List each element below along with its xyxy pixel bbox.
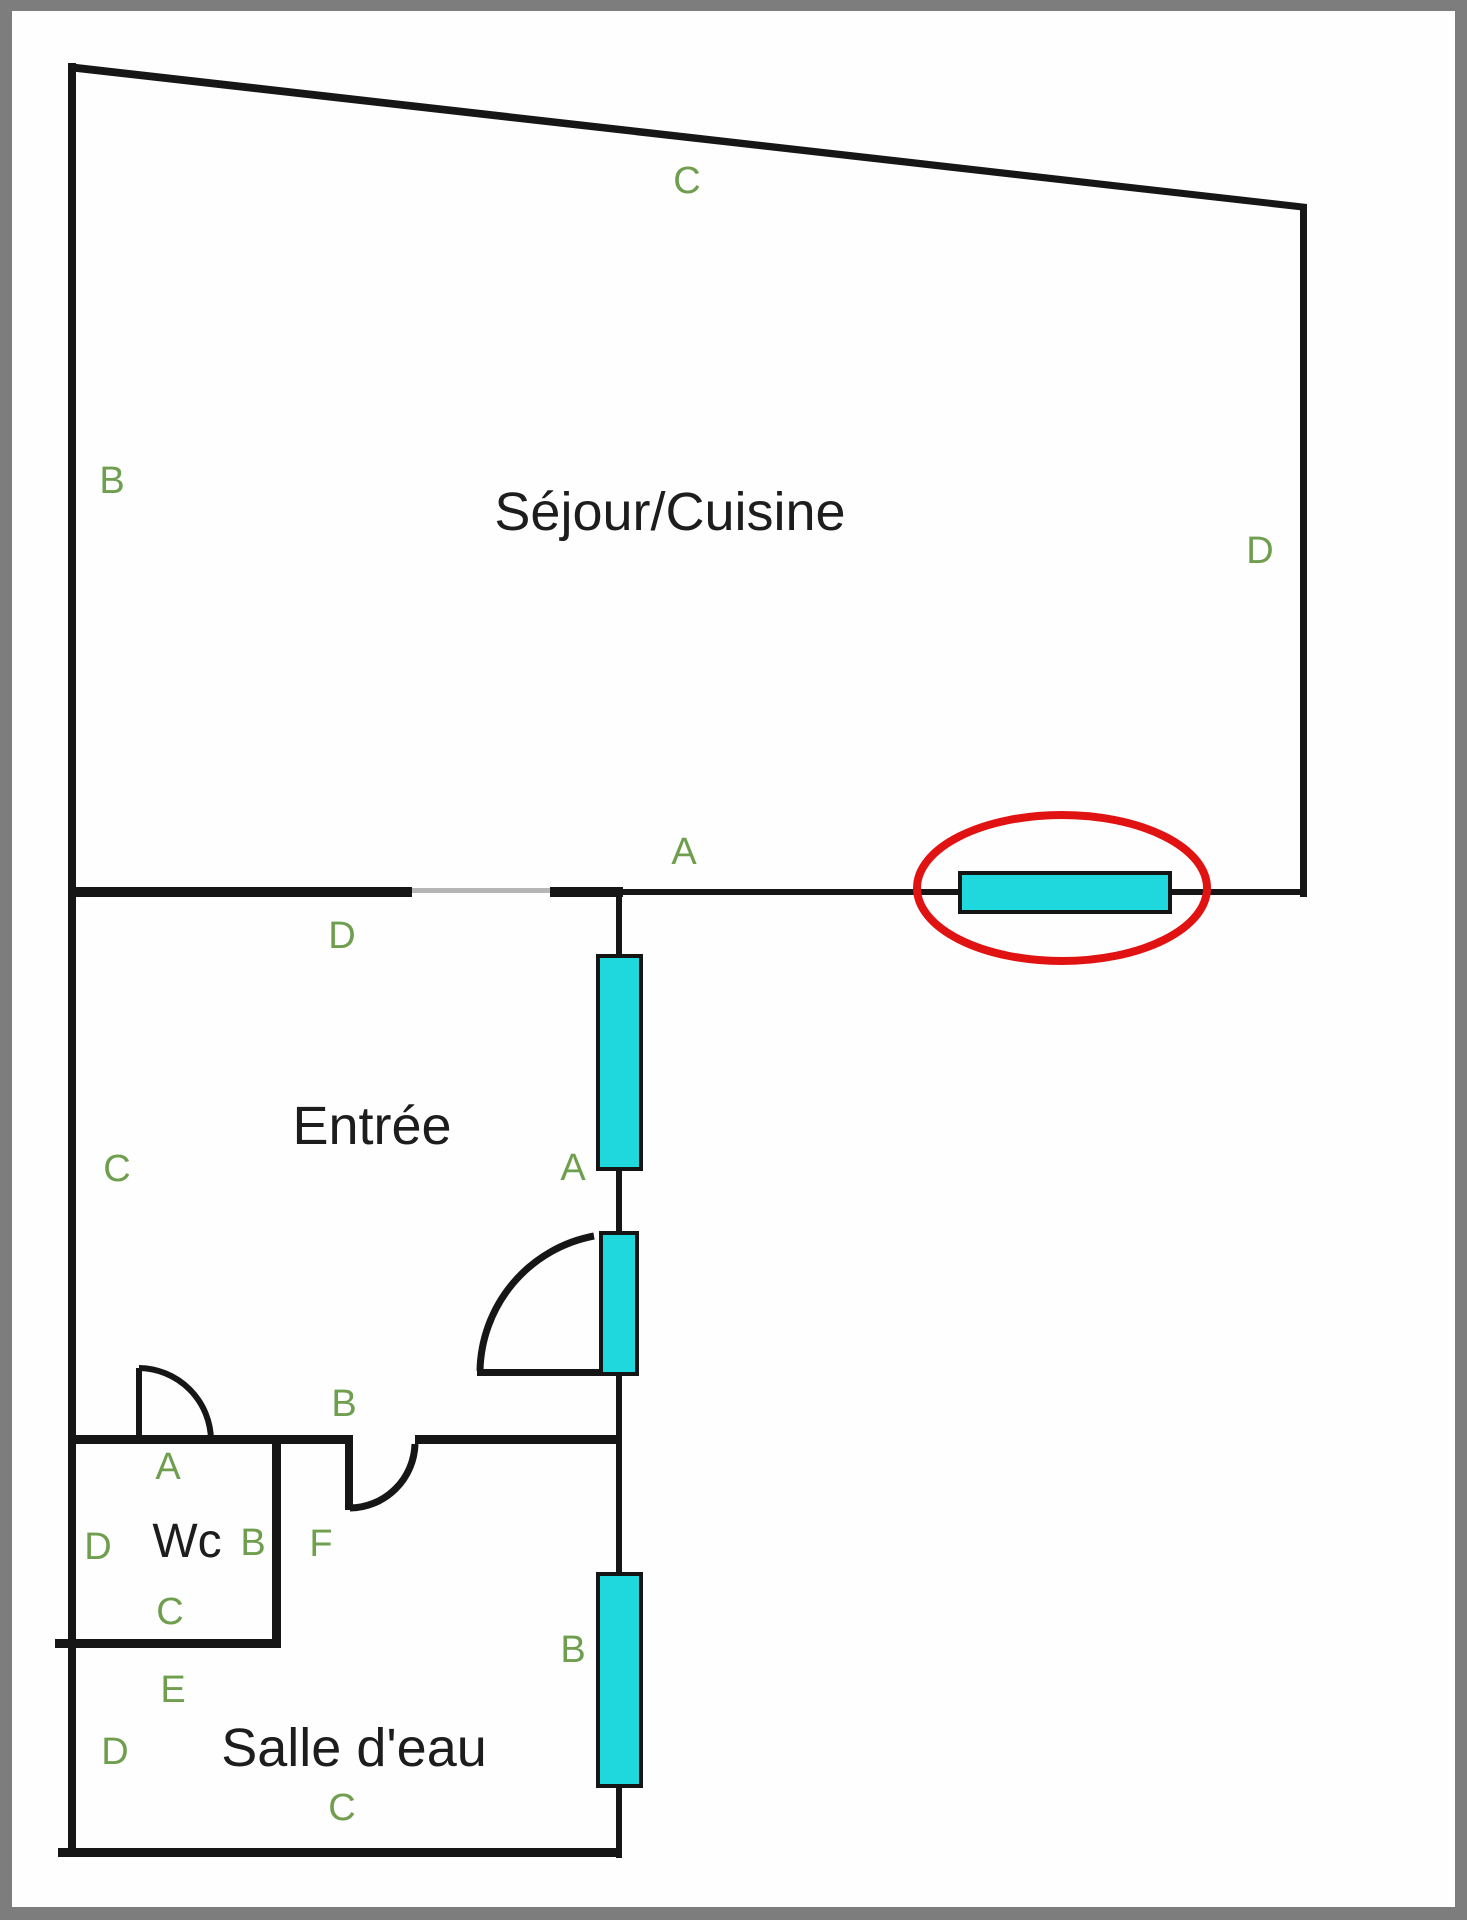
wall-label-entree-bottom: B	[331, 1385, 356, 1423]
wall-a-opening	[412, 888, 550, 893]
wall-a-segment-mid	[550, 887, 623, 897]
wall-a-segment-far-right	[1170, 889, 1307, 895]
wall-label-entree-left: C	[103, 1150, 130, 1188]
wall-label-sejour-top: C	[673, 162, 700, 200]
wall-label-salle-right: B	[560, 1631, 585, 1669]
window-salle-deau	[598, 1574, 641, 1786]
wall-label-wc-doorway: F	[309, 1525, 332, 1563]
wall-b-segment-right	[415, 1435, 622, 1444]
wc-door-arc	[139, 1368, 211, 1440]
wc-door-leaf	[136, 1368, 142, 1440]
floorplan-drawing	[0, 0, 1467, 1920]
wall-a-segment-left	[68, 887, 412, 897]
right-outer-wall	[1300, 204, 1307, 897]
bottom-outer-wall	[58, 1848, 622, 1857]
wc-right-wall	[272, 1439, 281, 1648]
wall-a-segment-right	[623, 889, 960, 895]
entree-door-arc	[480, 1236, 594, 1371]
left-outer-wall	[68, 63, 76, 1857]
salle-door-arc	[350, 1444, 415, 1508]
room-label-entree: Entrée	[292, 1099, 451, 1153]
wall-label-sejour-right: D	[1246, 532, 1273, 570]
wall-label-wc-bottom: C	[156, 1593, 183, 1631]
wall-b-segment-left	[68, 1435, 345, 1444]
wall-label-salle-top: E	[160, 1671, 185, 1709]
room-label-salle-deau: Salle d'eau	[221, 1721, 487, 1775]
wall-label-entree-top: D	[328, 917, 355, 955]
window-entree-lower	[601, 1233, 637, 1374]
wc-bottom-wall	[55, 1639, 281, 1648]
wall-label-wc-top: A	[155, 1448, 180, 1486]
wall-label-salle-left: D	[101, 1733, 128, 1771]
wall-label-wc-right: B	[240, 1524, 265, 1562]
wall-label-wc-left: D	[84, 1528, 111, 1566]
room-label-sejour-cuisine: Séjour/Cuisine	[494, 485, 845, 539]
window-entree-upper	[598, 956, 641, 1169]
salle-door-leaf	[345, 1435, 353, 1510]
wall-label-sejour-left: B	[99, 462, 124, 500]
room-label-wc: Wc	[152, 1518, 221, 1566]
wall-label-salle-bottom: C	[328, 1789, 355, 1827]
window-sejour-highlighted	[960, 873, 1170, 912]
floorplan-canvas: Séjour/Cuisine Entrée Wc Salle d'eau C B…	[0, 0, 1467, 1920]
wall-label-sejour-bottom: A	[671, 833, 696, 871]
wall-label-entree-right: A	[560, 1149, 585, 1187]
